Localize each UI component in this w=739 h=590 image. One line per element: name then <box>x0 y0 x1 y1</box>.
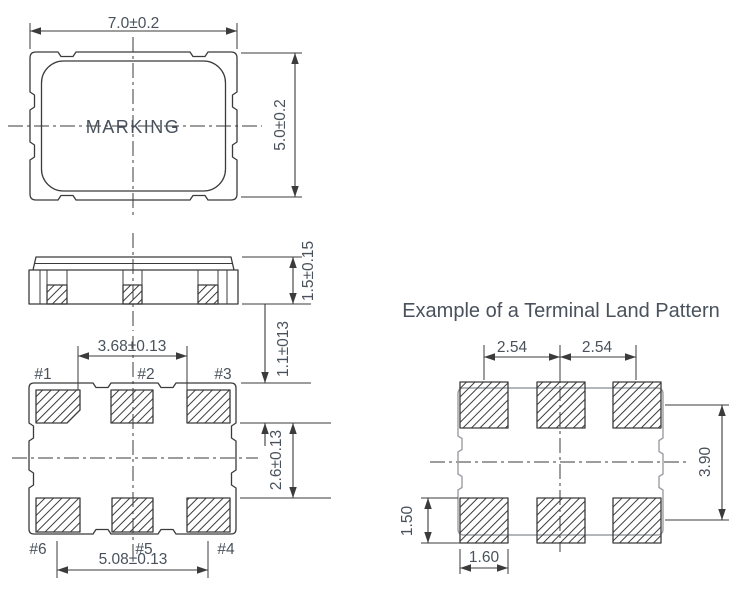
land-pattern: Example of a Terminal Land Pattern 2.54 … <box>399 300 729 574</box>
pitch-dimension-text-right: 2.54 <box>582 339 613 356</box>
side-view-terminal-hatch-3 <box>198 285 218 304</box>
land-pad-top-left <box>460 382 508 428</box>
pad-6 <box>36 498 80 532</box>
pad-5 <box>112 498 153 532</box>
pad-1 <box>36 390 80 423</box>
pad-2-label: #2 <box>137 366 154 383</box>
pad-3 <box>187 390 230 423</box>
row-pitch-dimension-text: 3.90 <box>697 447 714 478</box>
pitch-dimension-text-left: 2.54 <box>497 339 528 356</box>
thickness-dimension-text: 1.5±0.15 <box>300 241 317 301</box>
package-drawing-page: MARKING 7.0±0.2 5.0±0.2 1.5±0.15 <box>0 0 739 590</box>
marking-text: MARKING <box>86 117 181 137</box>
height-dimension-text: 5.0±0.2 <box>272 99 289 151</box>
top-view: MARKING 7.0±0.2 5.0±0.2 <box>8 15 302 219</box>
pad-length-dimension: 1.1±013 <box>241 304 311 446</box>
land-pad-bottom-right <box>613 498 661 543</box>
land-pad-width-dimension: 1.60 <box>460 549 508 574</box>
land-pad-top-center <box>537 382 585 428</box>
thickness-dimension: 1.5±0.15 <box>242 241 317 304</box>
land-pad-bottom-center <box>537 498 585 543</box>
pad-6-label: #6 <box>29 541 46 558</box>
pad-3-label: #3 <box>214 366 231 383</box>
pad-4-label: #4 <box>217 541 235 558</box>
pad-length-dimension-text: 1.1±013 <box>275 321 292 377</box>
land-pad-top-right <box>613 382 661 428</box>
row-gap-dimension-text: 2.6±0.13 <box>268 430 285 490</box>
land-pattern-title: Example of a Terminal Land Pattern <box>402 300 720 322</box>
side-view-terminal-hatch-2 <box>123 285 142 304</box>
pitch-dimensions: 2.54 2.54 <box>484 339 636 383</box>
land-pad-bottom-left <box>460 498 508 543</box>
pad-1-label: #1 <box>34 366 51 383</box>
row-gap-dimension: 2.6±0.13 <box>240 423 331 498</box>
bottom-span-dimension-text: 5.08±0.13 <box>99 551 168 568</box>
row-gap-extension-lines <box>240 423 331 498</box>
top-span-dimension-text: 3.68±0.13 <box>98 338 167 355</box>
side-view-terminal-hatch-1 <box>47 285 67 304</box>
pad-2 <box>111 390 153 423</box>
land-pad-height-dimension-text: 1.50 <box>399 506 416 537</box>
width-dimension-text: 7.0±0.2 <box>108 15 160 32</box>
pad-4 <box>187 498 230 532</box>
height-dimension: 5.0±0.2 <box>241 53 302 197</box>
technical-drawing: MARKING 7.0±0.2 5.0±0.2 1.5±0.15 <box>0 0 739 590</box>
land-pad-width-dimension-text: 1.60 <box>469 549 500 566</box>
